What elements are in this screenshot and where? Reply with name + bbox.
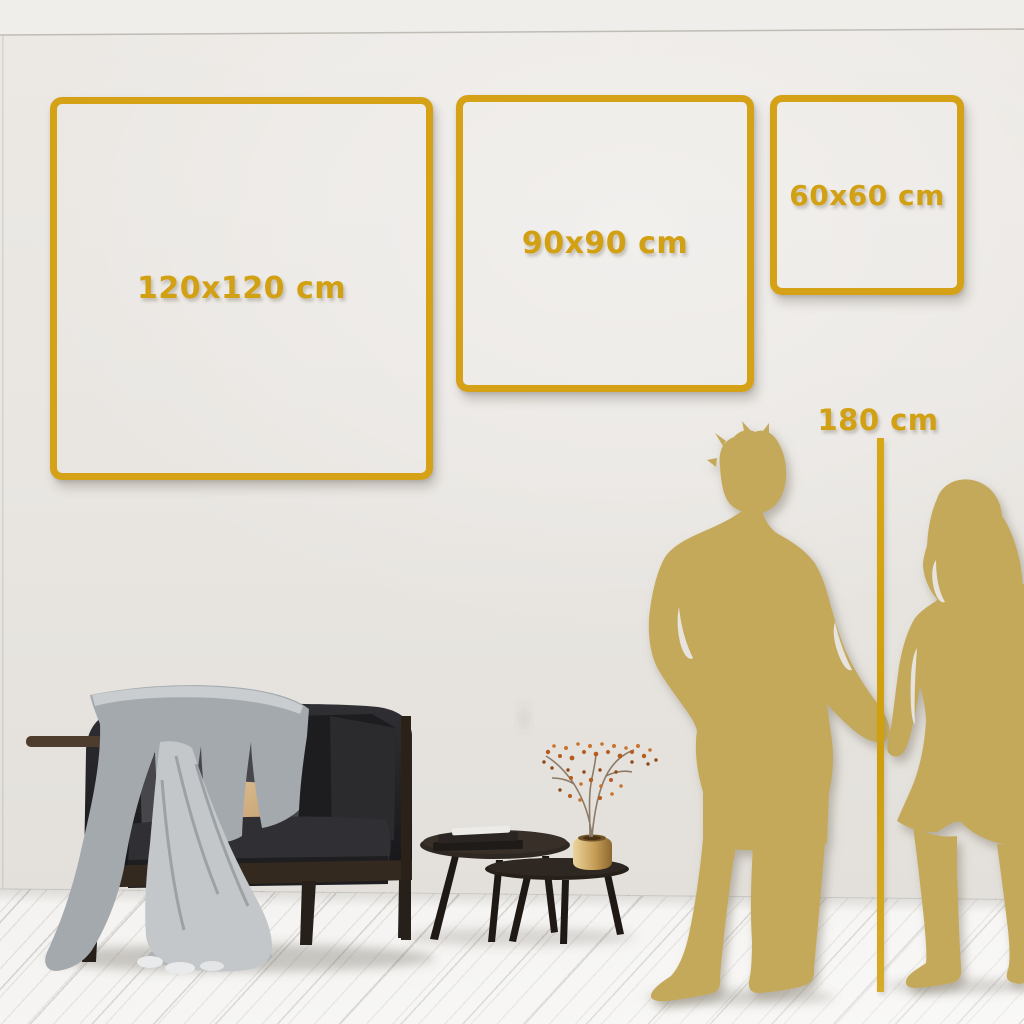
ceiling [0, 0, 1024, 35]
couple-silhouette [649, 421, 1024, 1001]
books-stack [433, 825, 523, 851]
table-leg [604, 874, 624, 935]
man-right-leg [749, 843, 825, 993]
coffee-tables [420, 742, 658, 944]
woman-left-leg [906, 826, 961, 988]
height-reference-line [877, 438, 884, 992]
sofa-leg-mid [300, 881, 316, 945]
man-silhouette [649, 421, 890, 1001]
woman-silhouette [887, 479, 1024, 988]
size-square-60: 60x60 cm [770, 95, 964, 295]
wall-smudge [519, 705, 529, 731]
size-label-90: 90x90 cm [522, 226, 688, 261]
table-leg [430, 856, 459, 940]
size-square-90: 90x90 cm [456, 95, 754, 392]
size-guide-room-scene: 120x120 cm 90x90 cm 60x60 cm 180 cm [0, 0, 1024, 1024]
man-pelvis [703, 791, 829, 850]
man-head [707, 421, 786, 513]
brass-vase [573, 835, 612, 871]
size-label-120: 120x120 cm [137, 271, 346, 306]
size-square-120: 120x120 cm [50, 97, 433, 480]
sofa-leg-right [398, 880, 411, 938]
sofa [26, 685, 412, 974]
berry-branch [542, 742, 657, 837]
woman-right-leg [997, 844, 1024, 984]
woman-body [887, 583, 1024, 846]
wall-corner-line [2, 36, 4, 888]
height-reference-label: 180 cm [816, 403, 940, 437]
size-label-60: 60x60 cm [789, 179, 945, 212]
man-left-leg [651, 839, 736, 1001]
